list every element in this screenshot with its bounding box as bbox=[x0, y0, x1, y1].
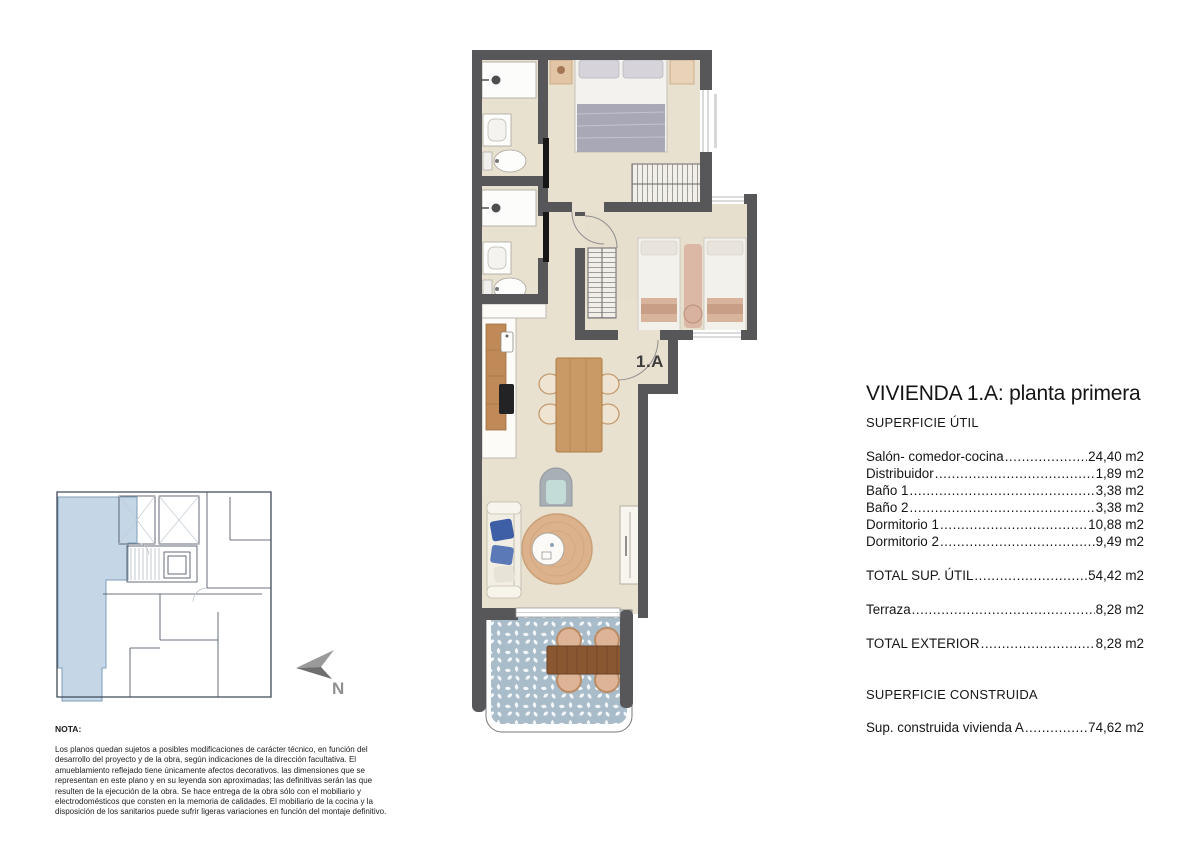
dotted-leader bbox=[909, 482, 1094, 499]
dotted-leader bbox=[935, 465, 1095, 482]
total-util-row: TOTAL SUP. ÚTIL 54,42 m2 bbox=[866, 567, 1144, 584]
unit-label: 1.A bbox=[636, 352, 664, 371]
north-arrow: N bbox=[296, 650, 344, 698]
area-value: 3,38 m2 bbox=[1096, 482, 1144, 499]
dotted-leader bbox=[1025, 719, 1087, 736]
sliding-door-bath1 bbox=[543, 138, 549, 188]
area-row: Salón- comedor-cocina 24,40 m2 bbox=[866, 448, 1144, 465]
dotted-leader bbox=[909, 499, 1094, 516]
area-label: Salón- comedor-cocina bbox=[866, 448, 1004, 465]
area-row: Baño 1 3,38 m2 bbox=[866, 482, 1144, 499]
areas-panel: VIVIENDA 1.A: planta primera SUPERFICIE … bbox=[866, 382, 1144, 736]
area-value: 8,28 m2 bbox=[1096, 601, 1144, 618]
cooktop bbox=[499, 384, 514, 414]
stair-treads bbox=[131, 548, 159, 580]
page-title: VIVIENDA 1.A: planta primera bbox=[866, 382, 1144, 406]
window-bedroom1 bbox=[700, 90, 712, 152]
sideboard bbox=[620, 506, 640, 584]
dotted-leader bbox=[940, 516, 1087, 533]
area-label: Sup. construida vivienda A bbox=[866, 719, 1024, 736]
sliding-door-bath2 bbox=[543, 212, 549, 262]
area-row: Dormitorio 1 10,88 m2 bbox=[866, 516, 1144, 533]
window-bedroom2-bottom bbox=[693, 330, 741, 340]
dotted-leader bbox=[981, 635, 1095, 652]
area-label: Dormitorio 1 bbox=[866, 516, 939, 533]
area-label: Distribuidor bbox=[866, 465, 934, 482]
armchair bbox=[540, 468, 572, 506]
area-row: Baño 2 3,38 m2 bbox=[866, 499, 1144, 516]
key-plan: N bbox=[45, 480, 350, 705]
dotted-leader bbox=[912, 601, 1095, 618]
entry-door-gap bbox=[618, 330, 660, 340]
note-heading: NOTA: bbox=[55, 724, 387, 734]
area-label: Dormitorio 2 bbox=[866, 533, 939, 550]
area-label: TOTAL EXTERIOR bbox=[866, 635, 980, 652]
brochure-page: 1.A N V bbox=[0, 0, 1200, 848]
dotted-leader bbox=[1005, 448, 1087, 465]
area-value: 10,88 m2 bbox=[1088, 516, 1144, 533]
superficie-construida-heading: SUPERFICIE CONSTRUIDA bbox=[866, 687, 1144, 702]
area-label: Terraza bbox=[866, 601, 911, 618]
area-label: Baño 2 bbox=[866, 499, 908, 516]
terraza-row: Terraza 8,28 m2 bbox=[866, 601, 1144, 618]
area-value: 3,38 m2 bbox=[1096, 499, 1144, 516]
area-value: 1,89 m2 bbox=[1096, 465, 1144, 482]
floor-plan: 1.A bbox=[440, 30, 800, 750]
north-label: N bbox=[332, 679, 344, 698]
window-bedroom2-top bbox=[712, 194, 744, 204]
area-value: 74,62 m2 bbox=[1088, 719, 1144, 736]
total-exterior-row: TOTAL EXTERIOR 8,28 m2 bbox=[866, 635, 1144, 652]
area-row: Distribuidor 1,89 m2 bbox=[866, 465, 1144, 482]
highlighted-unit bbox=[58, 497, 137, 701]
rug-and-coffee-table bbox=[522, 514, 592, 584]
note: NOTA: Los planos quedan sujetos a posibl… bbox=[55, 724, 387, 818]
note-body: Los planos quedan sujetos a posibles mod… bbox=[55, 745, 387, 818]
area-label: TOTAL SUP. ÚTIL bbox=[866, 567, 973, 584]
bedroom2-furniture bbox=[588, 238, 746, 332]
area-row: Dormitorio 2 9,49 m2 bbox=[866, 533, 1144, 550]
area-value: 24,40 m2 bbox=[1088, 448, 1144, 465]
area-label: Baño 1 bbox=[866, 482, 908, 499]
area-value: 8,28 m2 bbox=[1096, 635, 1144, 652]
superficie-util-heading: SUPERFICIE ÚTIL bbox=[866, 415, 1144, 430]
area-value: 54,42 m2 bbox=[1088, 567, 1144, 584]
area-rows: Salón- comedor-cocina 24,40 m2 Distribui… bbox=[866, 448, 1144, 652]
dotted-leader bbox=[974, 567, 1087, 584]
construida-row: Sup. construida vivienda A 74,62 m2 bbox=[866, 719, 1144, 736]
area-value: 9,49 m2 bbox=[1096, 533, 1144, 550]
sofa bbox=[487, 502, 521, 598]
dotted-leader bbox=[940, 533, 1095, 550]
